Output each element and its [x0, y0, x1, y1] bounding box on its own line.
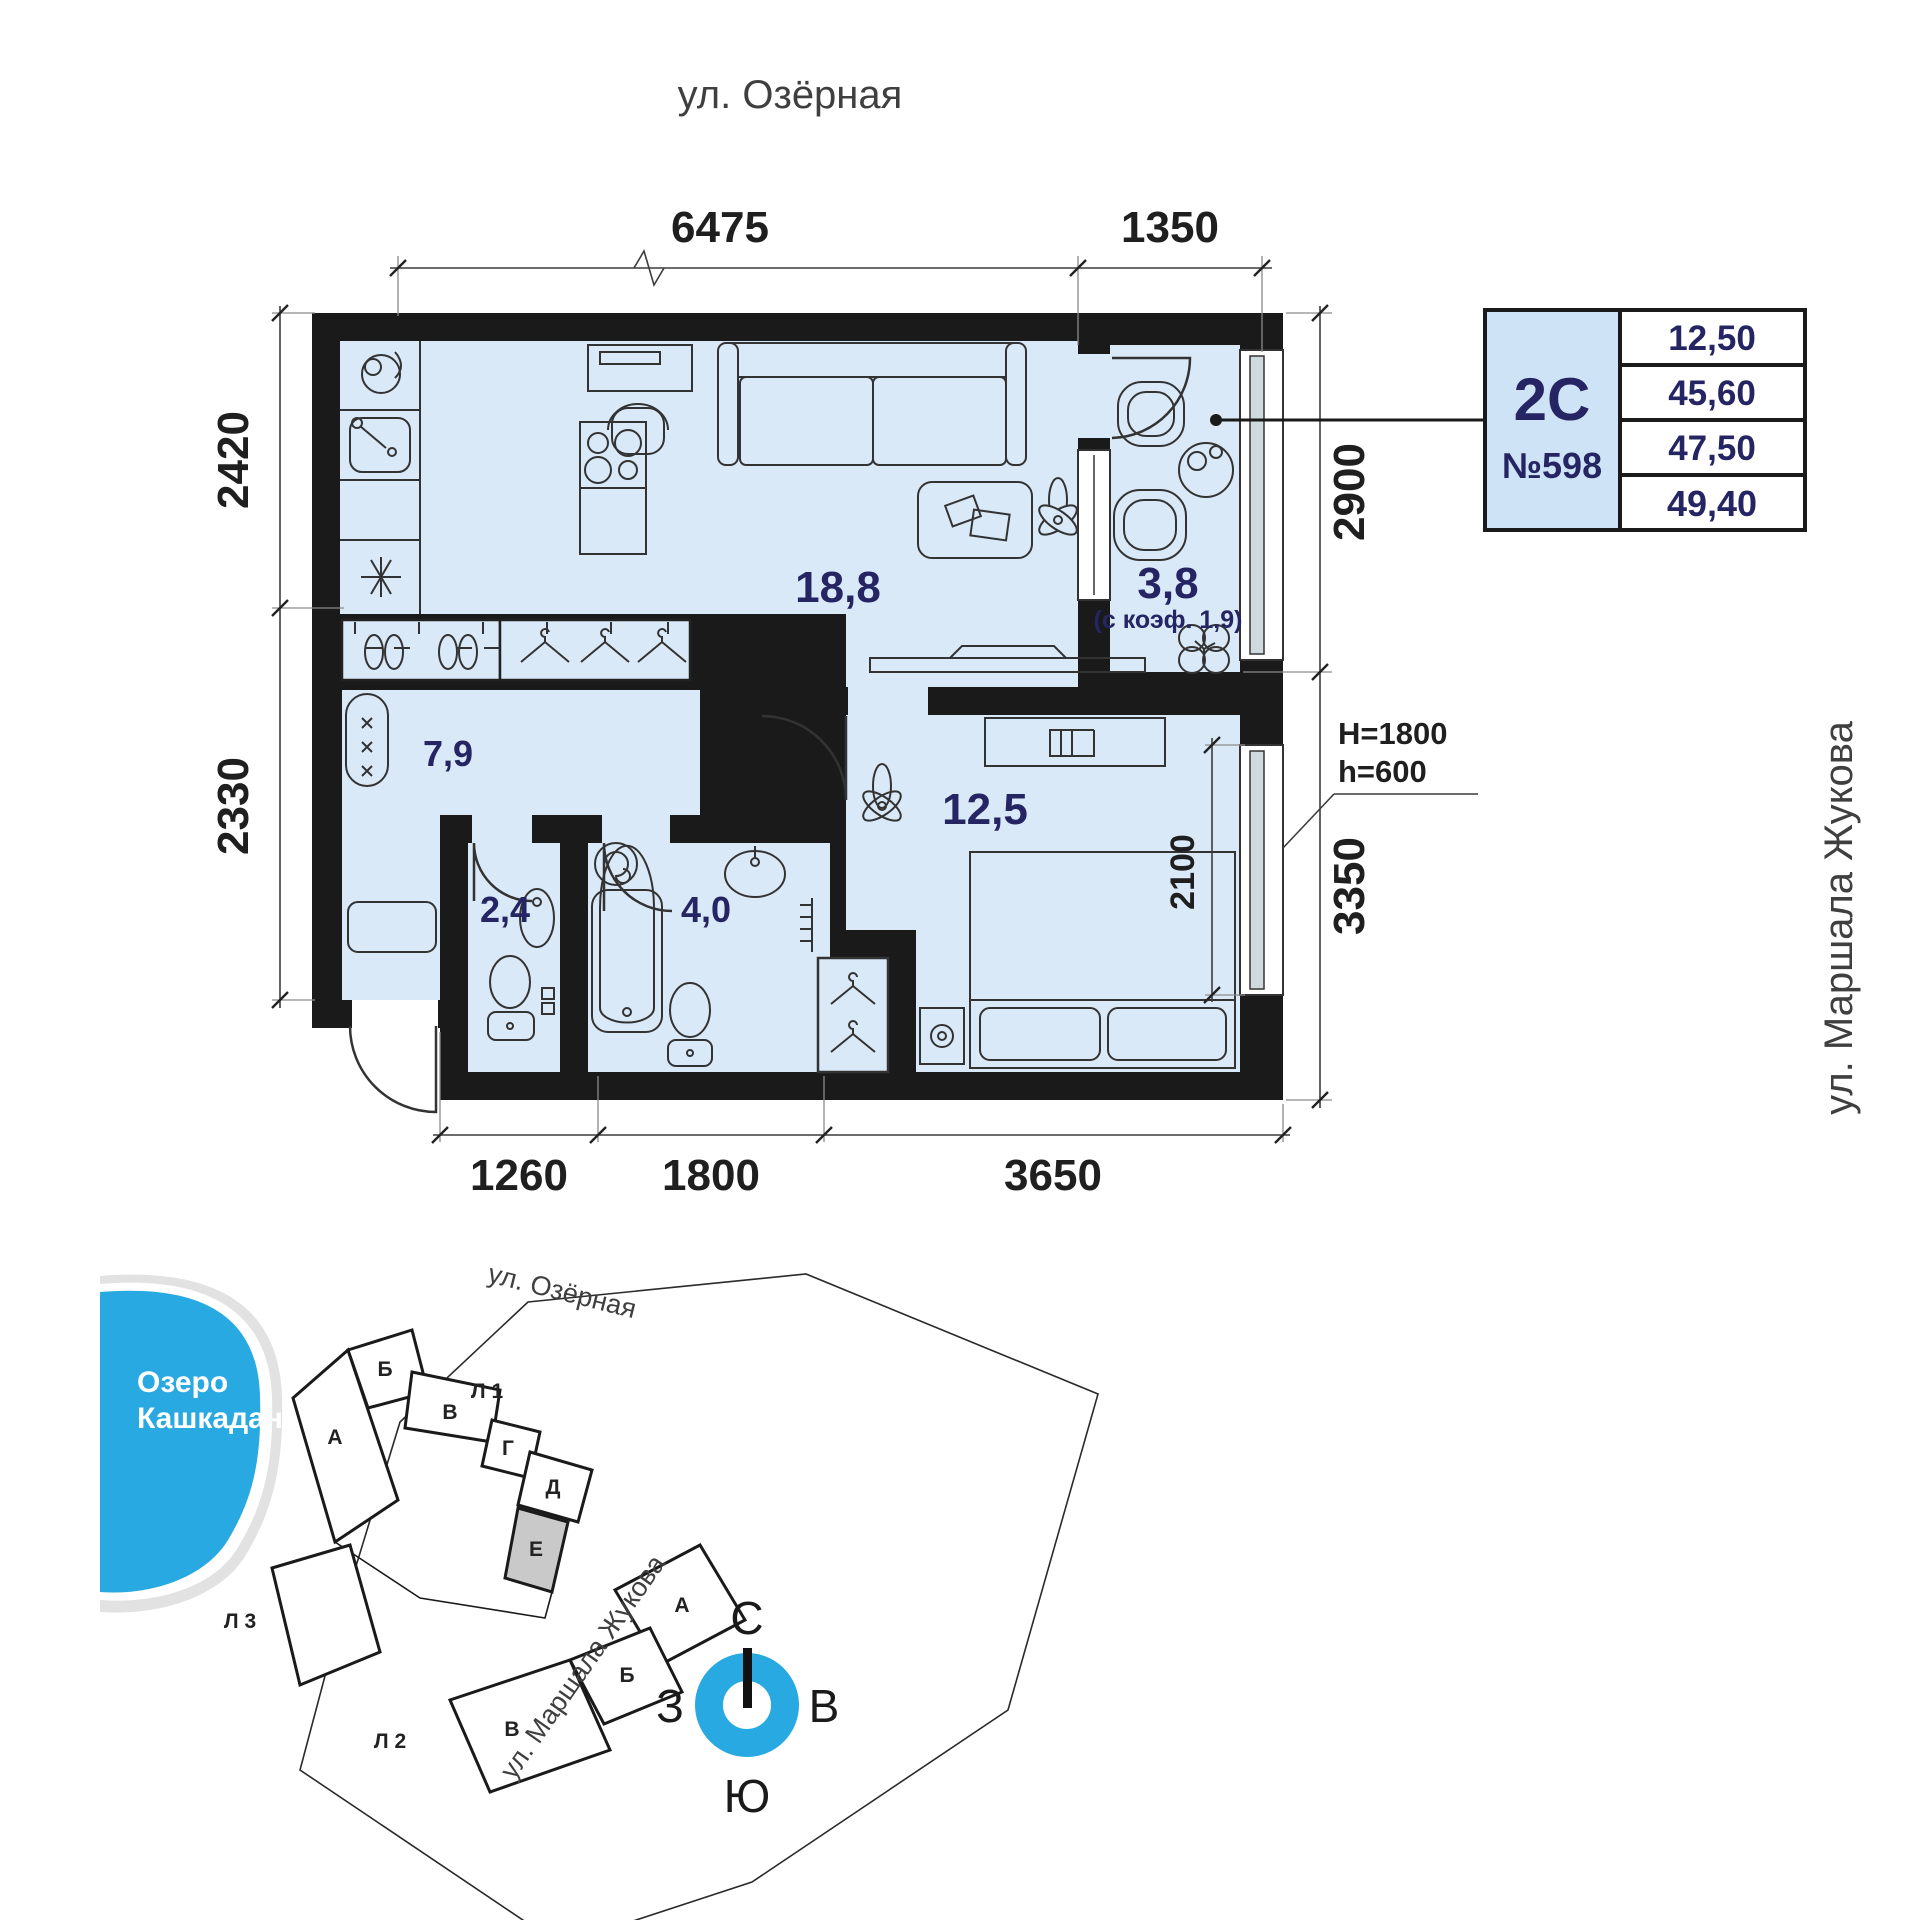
info-card-number: №598: [1502, 445, 1602, 486]
floorplan-page: ул. Озёрная ул. Маршала Жукова: [0, 0, 1920, 1920]
dim-bottom-1: 1260: [470, 1151, 568, 1200]
area-hallway: 7,9: [423, 733, 473, 774]
bedroom-window: [1240, 745, 1283, 995]
dim-right-2: 3350: [1325, 837, 1374, 935]
info-card-area-3: 47,50: [1668, 429, 1756, 468]
site-section-V: В: [442, 1401, 457, 1424]
site-street-top: ул. Озёрная: [485, 1258, 639, 1324]
dim-window: 2100: [1164, 834, 1202, 910]
info-card-area-2: 45,60: [1668, 374, 1756, 413]
dim-right-1: 2900: [1325, 443, 1374, 541]
info-card-type: 2С: [1514, 366, 1591, 433]
sofa: [718, 343, 1026, 465]
bedroom-door-gap: [848, 687, 928, 715]
site-entrance-L1: Л 1: [471, 1380, 504, 1403]
compass-north: С: [730, 1592, 763, 1644]
site-section-E: Е: [529, 1538, 543, 1561]
compass-east: В: [809, 1680, 840, 1732]
dim-left-2: 2330: [209, 757, 258, 855]
site-entrance-L3: Л 3: [224, 1610, 256, 1633]
wardrobe-strip: [342, 620, 690, 680]
wc-door-gap: [472, 815, 532, 843]
site-section-G: Г: [502, 1437, 514, 1460]
L3-block: [272, 1545, 380, 1685]
window-height-note-1: Н=1800: [1338, 716, 1447, 751]
dim-bottom-2: 1800: [662, 1151, 760, 1200]
site-lower-A: А: [674, 1594, 689, 1617]
room-closet: [818, 958, 888, 1072]
info-card-area-total: 49,40: [1667, 483, 1757, 524]
dim-left-1: 2420: [209, 411, 258, 509]
compass-needle-icon: [743, 1648, 752, 1708]
street-label-right: ул. Маршала Жукова: [1817, 720, 1861, 1114]
balcony-window: [1240, 350, 1283, 660]
street-label-top: ул. Озёрная: [678, 73, 903, 117]
window-height-note-2: h=600: [1338, 754, 1427, 789]
site-plan: Озеро Кашкадан А Б В Г Д Е Л 1 Л 2: [100, 1258, 1098, 1920]
dim-bottom-3: 3650: [1004, 1151, 1102, 1200]
area-balcony: 3,8: [1137, 559, 1198, 608]
entry-door: [350, 1026, 436, 1112]
floorplan-drawing: ул. Озёрная ул. Маршала Жукова: [0, 0, 1920, 1920]
dim-top-1: 6475: [671, 203, 769, 252]
area-bedroom: 12,5: [942, 785, 1028, 834]
dim-top-2: 1350: [1121, 203, 1219, 252]
info-card: 2С №598 12,50 45,60 47,50 49,40: [1210, 310, 1805, 530]
compass-south: Ю: [724, 1770, 770, 1822]
lake-label-2: Кашкадан: [137, 1402, 283, 1435]
info-card-area-1: 12,50: [1668, 319, 1756, 358]
bathroom-door-gap: [602, 815, 670, 843]
entry-door-gap: [352, 1000, 438, 1028]
site-section-A: А: [327, 1426, 342, 1449]
window-height-leader: [1283, 794, 1478, 848]
room-bathroom: [588, 843, 830, 1072]
area-kitchen-living: 18,8: [795, 563, 881, 612]
site-lower-B: Б: [619, 1664, 634, 1687]
site-entrance-L2: Л 2: [374, 1730, 406, 1753]
living-balcony-window: [1078, 450, 1110, 600]
area-balcony-coef: (с коэф. 1,9): [1094, 606, 1243, 634]
area-bathroom: 4,0: [681, 889, 731, 930]
lake-label-1: Озеро: [137, 1366, 228, 1399]
balcony-door-gap: [1078, 354, 1110, 438]
site-section-B: Б: [377, 1358, 392, 1381]
area-wc: 2,4: [480, 889, 530, 930]
compass-west: З: [656, 1680, 684, 1732]
site-section-D: Д: [546, 1476, 561, 1499]
